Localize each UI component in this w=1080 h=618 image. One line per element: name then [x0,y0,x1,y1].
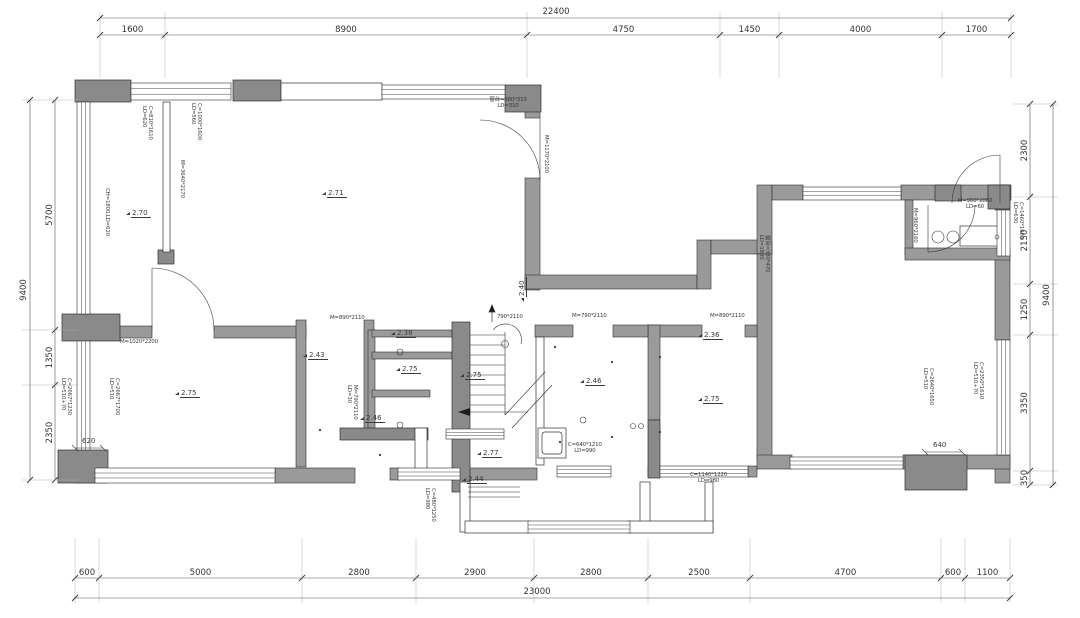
elevation-marker-icon [477,452,481,455]
floor-elevation: 2.36 [698,332,703,339]
dimension-label: 2800 [580,568,602,578]
elevation-marker-icon [580,380,584,383]
inline-dimension: 640 [933,441,946,449]
window-spec: C=1140*1220 LD=980 [690,472,727,484]
floor-elevation: 2.43 [303,352,308,359]
elevation-marker-icon [175,392,179,395]
dimension-label: 1600 [122,25,144,35]
dimension-label: 1450 [739,25,761,35]
elevation-marker-icon [322,192,326,195]
elevation-marker-icon [391,332,395,335]
window-spec: C=1000*1600 LD=560 [190,103,202,140]
window-sill-spec: 窗台=380*310 LD=310 [478,97,538,109]
dimension-label: 1700 [966,25,988,35]
dimension-label: 2500 [688,568,710,578]
window-sill-spec: 窗台=330*470 LD=1800 [758,235,770,272]
floor-elevation: 2.46 [360,415,365,422]
dimension-label: 23000 [523,587,550,597]
elevation-marker-icon [360,417,364,420]
elevation-marker-icon [303,354,307,357]
window-spec: C=1460*1600 LD=630 [1012,202,1024,239]
window-spec: C=2667*1700 LD=510 [108,378,120,415]
floor-elevation: 2.71 [322,190,327,197]
floor-elevation: 2.44 [462,476,467,483]
floor-elevation: 2.38 [391,330,396,337]
door-spec: M=790*2110 [572,313,607,319]
window-spec: C=640*1210 LD=990 [568,442,602,454]
door-spec: M=960*2160 [912,208,918,243]
elevation-marker-icon [396,368,400,371]
doors-layer [152,118,1000,330]
window-spec: C=480*1250 LD=980 [424,488,436,522]
door-spec: M=890*2110 [710,313,745,319]
window-spec: CH=1800,LD=620 [104,188,110,236]
elevation-marker-icon [521,298,524,302]
window-spec: C=810*1610 LD=620 [141,106,153,140]
dimension-label: 2800 [348,568,370,578]
dimension-label: 5700 [45,204,55,226]
dimension-label: 1250 [1020,299,1030,321]
dimension-label: 1100 [977,568,999,578]
up-arrow-icon [489,305,495,322]
floor-elevation: 2.70 [126,210,131,217]
stair-door-spec: 790*2110 [497,314,523,320]
elevation-marker-icon [698,398,702,401]
floor-elevation: 2.75 [698,396,703,403]
dimension-label: 4700 [835,568,857,578]
elevation-marker-icon [698,334,702,337]
dimension-label: 3350 [1020,392,1030,414]
floor-elevation: 2.75 [460,372,465,379]
door-spec: M=1170*2100 [543,135,549,173]
door-spec: M=790*2110 LD=30 [346,385,358,420]
elevation-marker-icon [460,374,464,377]
door-spec: M=890*2110 [330,315,365,321]
door-spec: M=3640*2170 [179,160,185,198]
dimension-label: 9400 [1042,284,1052,306]
floor-elevation: 2.40 [519,297,526,302]
door-spec: M=1020*2200 [120,339,158,345]
window-spec: C=2667*1230 LD=510+70 [60,378,72,415]
window-spec: C=2640*1650 LD=510 [922,368,934,405]
dimension-label: 4000 [850,25,872,35]
floor-elevation: 2.75 [396,366,401,373]
dimension-label: 1350 [45,347,55,369]
elevation-marker-icon [462,478,466,481]
dimension-label: 2350 [45,422,55,444]
dimension-label: 2900 [464,568,486,578]
inline-dimension: 620 [82,437,95,445]
dimension-label: 4750 [613,25,635,35]
door-spec: M=960*2080 LD=60 [948,198,1002,210]
dimension-label: 8900 [335,25,357,35]
dimension-label: 600 [945,568,961,578]
floorplan-canvas: 1600890047501450400017006005000280029002… [0,0,1080,618]
window-spec: C=2350*1610 LD=510+70 [972,362,984,399]
floor-elevation: 2.75 [175,390,180,397]
dimension-label: 5000 [190,568,212,578]
dimension-label: 2300 [1020,140,1030,162]
dimension-label: 22400 [542,7,569,17]
floor-elevation: 2.46 [580,378,585,385]
floor-elevation: 2.77 [477,450,482,457]
dimension-label: 9400 [19,279,29,301]
dimension-label: 350 [1020,470,1030,486]
dimension-label: 600 [79,568,95,578]
floorplan-drawing: 1600890047501450400017006005000280029002… [0,0,1080,618]
elevation-marker-icon [126,212,130,215]
